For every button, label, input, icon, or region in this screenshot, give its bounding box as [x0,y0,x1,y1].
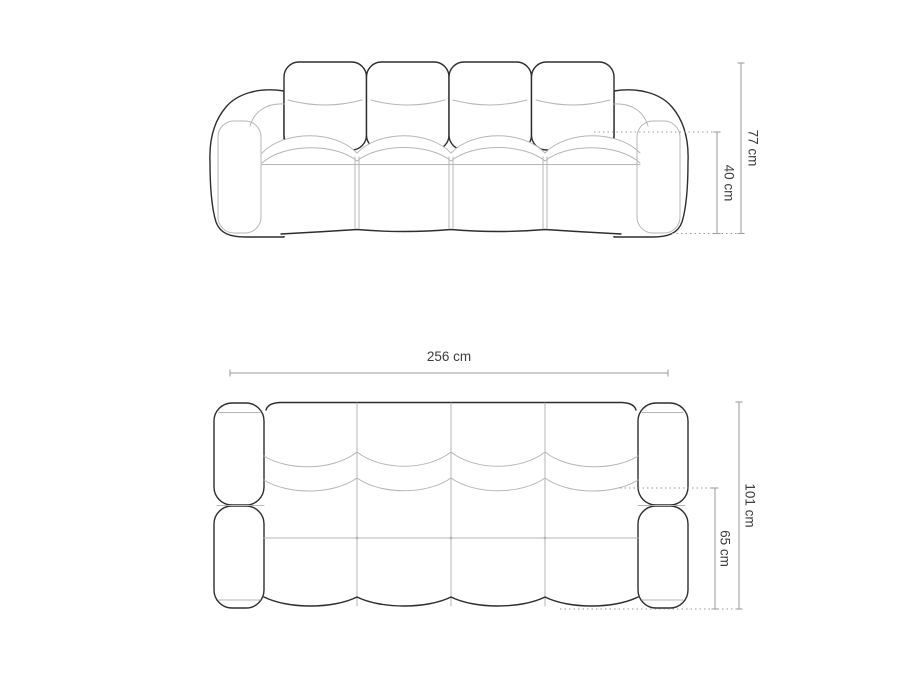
top-body-fill [260,402,640,608]
dimension-label-total-height: 77 cm [746,130,761,167]
seam-dot [356,537,359,540]
top-left-arm [214,403,264,608]
seam-dot [544,537,547,540]
arm-pillow [638,403,688,505]
dimension-total-height: 77 cm [738,63,761,234]
dimension-label-seat-depth: 65 cm [718,530,733,567]
top-right-arm [638,403,688,608]
top-view: 256 cm 65 cm 101 cm [214,349,758,609]
dimension-total-depth: 101 cm [736,402,758,609]
dimension-label-total-depth: 101 cm [743,483,758,527]
dimension-seat-height: 40 cm [714,132,737,234]
front-seat-mask [262,136,640,236]
arm-pillow [214,506,264,608]
arm-pillow [214,403,264,505]
front-view: 40 cm 77 cm [210,62,761,237]
seam-dot [450,537,453,540]
diagram-svg: 40 cm 77 cm [0,0,900,675]
dimension-label-seat-height: 40 cm [722,165,737,202]
arm-pillow [638,506,688,608]
sofa-dimension-diagram: 40 cm 77 cm [0,0,900,675]
dimension-total-width: 256 cm [230,349,668,377]
dimension-seat-depth: 65 cm [712,488,733,609]
front-back-cushions [284,62,614,150]
dimension-label-total-width: 256 cm [427,349,471,364]
